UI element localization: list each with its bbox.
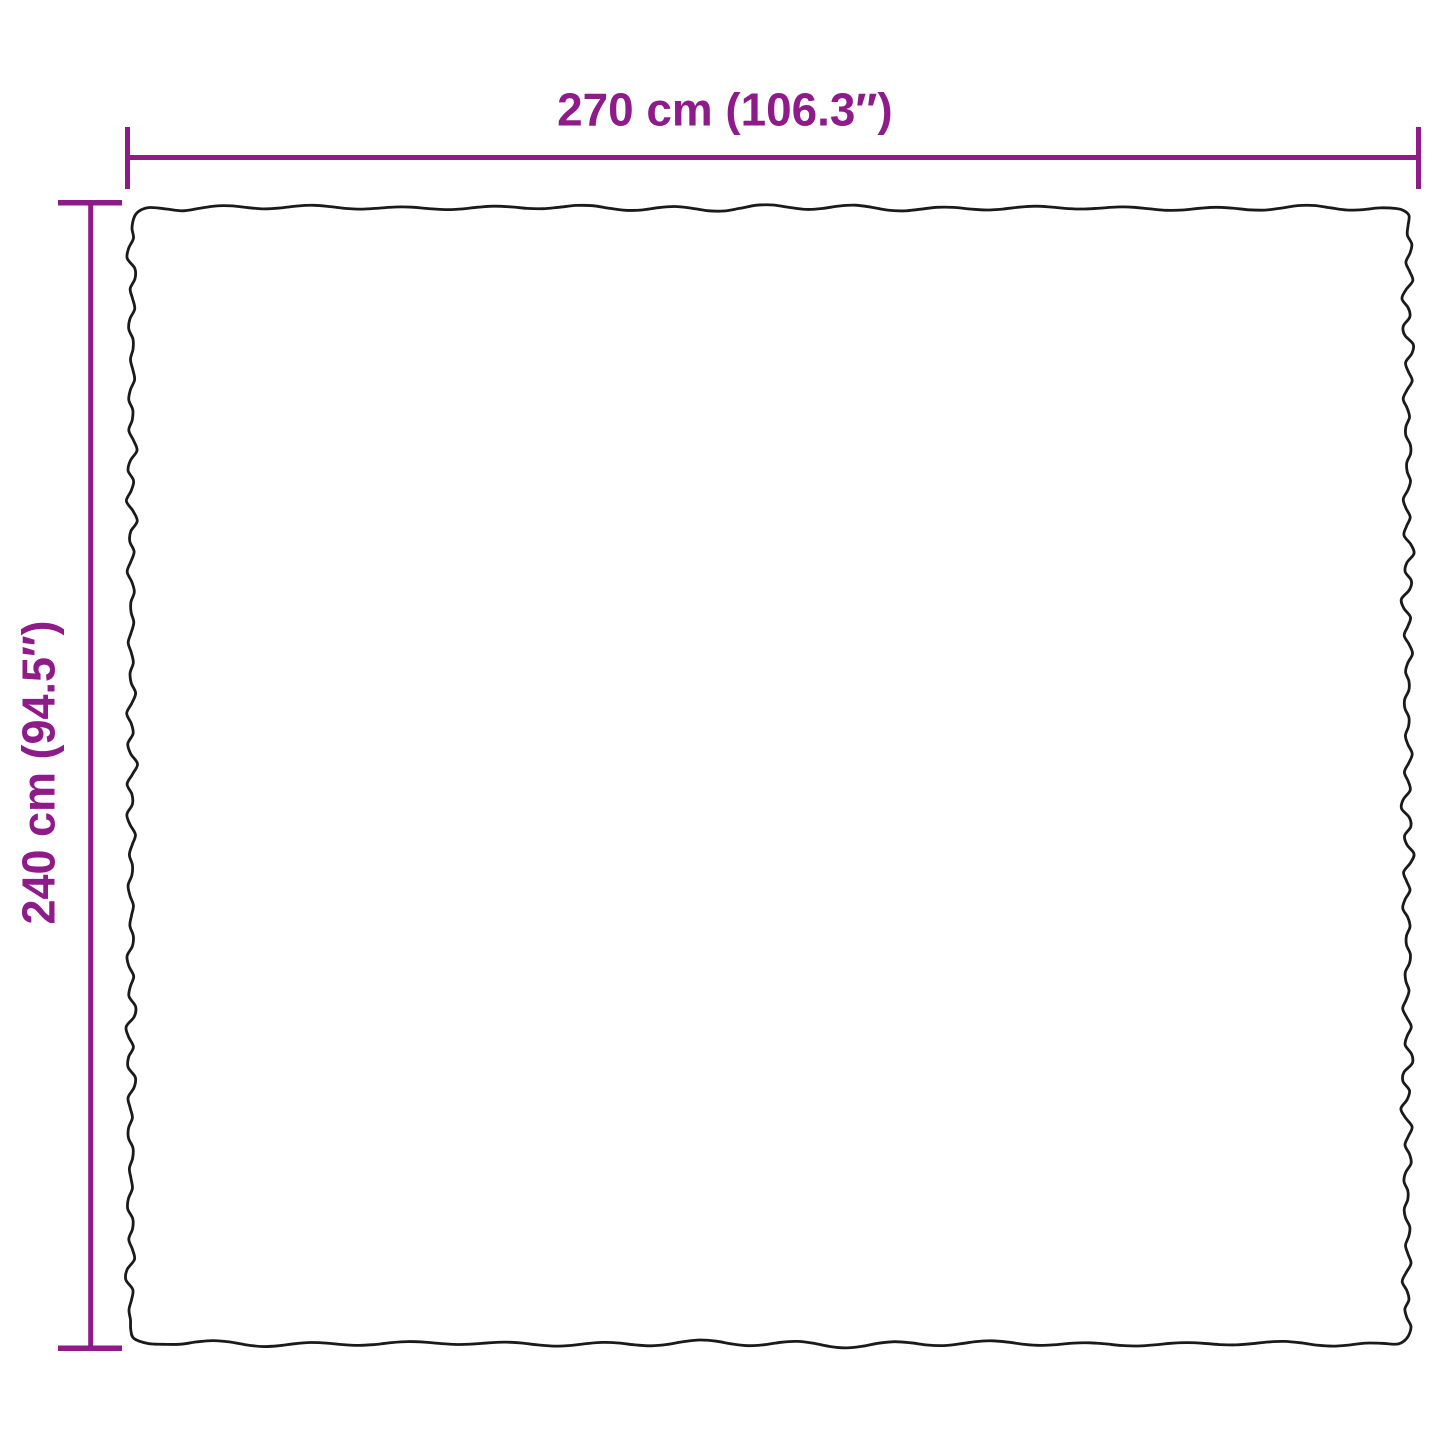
svg-text:270 cm (106.3″): 270 cm (106.3″) bbox=[557, 84, 893, 136]
svg-text:240 cm (94.5″): 240 cm (94.5″) bbox=[13, 621, 65, 925]
